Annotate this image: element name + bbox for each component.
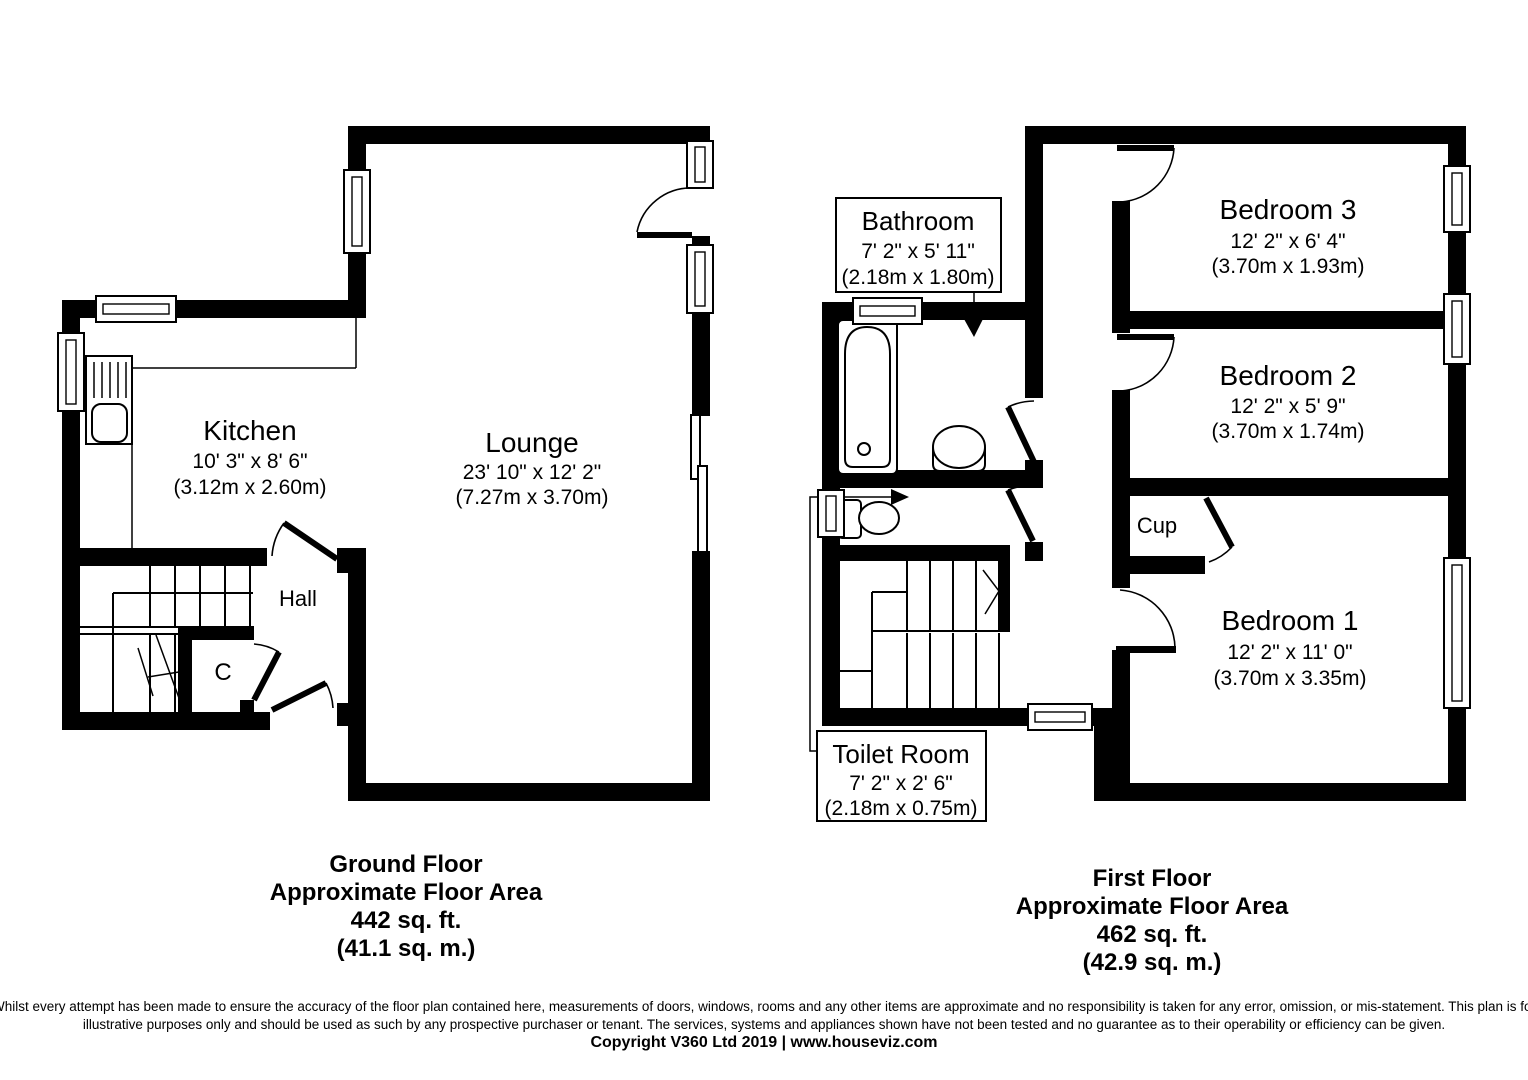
bedroom2-dims-imperial: 12' 2" x 5' 9" [1230,395,1345,418]
first-floor-plan: Bathroom 7' 2" x 5' 11" (2.18m x 1.80m) … [810,126,1470,976]
door-swing [1117,334,1174,391]
toilet-room-label-box: Toilet Room 7' 2" x 2' 6" (2.18m x 0.75m… [817,731,986,821]
door-swing [1116,590,1176,653]
window [1444,166,1470,232]
window [818,490,844,537]
window [96,296,176,322]
ground-summary-title: Ground Floor [329,851,482,878]
bathroom-dims-metric: (2.18m x 1.80m) [842,266,995,289]
kitchen-sink-icon [86,356,132,444]
door-swing [272,523,337,559]
window [1444,558,1470,708]
bathroom-dims-imperial: 7' 2" x 5' 11" [861,240,975,263]
bedroom2-label: Bedroom 2 [1220,360,1357,391]
sliding-door [691,415,707,552]
bedroom1-label: Bedroom 1 [1222,605,1359,636]
bathroom-label: Bathroom [862,206,975,236]
door-swing [1117,145,1174,202]
lounge-dims-metric: (7.27m x 3.70m) [456,486,609,509]
bathtub-icon [838,320,897,474]
ground-floor-plan: Kitchen 10' 3" x 8' 6" (3.12m x 2.60m) L… [58,126,713,962]
ground-summary-area-m: (41.1 sq. m.) [337,935,476,962]
door-swing [1008,486,1034,541]
window [1028,704,1092,730]
bedroom3-dims-metric: (3.70m x 1.93m) [1212,255,1365,278]
first-cupboard-label: Cup [1137,513,1177,538]
window [687,245,713,313]
kitchen-dims-imperial: 10' 3" x 8' 6" [192,450,307,473]
toilet-room-dims-imperial: 7' 2" x 2' 6" [849,772,952,795]
hall-label: Hall [279,586,317,611]
door-swing [637,188,692,238]
kitchen-dims-metric: (3.12m x 2.60m) [174,476,327,499]
door-swing [254,644,279,700]
disclaimer-line-2: illustrative purposes only and should be… [83,1017,1445,1032]
ground-summary-line2: Approximate Floor Area [270,879,543,906]
ground-cupboard-label: C [214,659,231,686]
bedroom1-dims-imperial: 12' 2" x 11' 0" [1227,641,1352,664]
floor-plan-page: Kitchen 10' 3" x 8' 6" (3.12m x 2.60m) L… [0,0,1528,1080]
door-swing [272,683,333,710]
window [344,170,370,253]
bedroom2-dims-metric: (3.70m x 1.74m) [1212,420,1365,443]
toilet-room-dims-metric: (2.18m x 0.75m) [825,797,978,820]
ground-walls [62,126,710,801]
footer-disclaimer: Whilst every attempt has been made to en… [0,999,1528,1051]
first-summary-title: First Floor [1093,865,1212,892]
lounge-dims-imperial: 23' 10" x 12' 2" [463,461,602,484]
door-swing [1206,498,1232,562]
bathroom-sink-icon [933,426,985,471]
toilet-room-label: Toilet Room [832,739,969,769]
ground-floor-summary: Ground Floor Approximate Floor Area 442 … [270,851,543,962]
window [687,141,713,188]
window [1444,294,1470,364]
first-summary-area-ft: 462 sq. ft. [1097,921,1208,948]
bedroom3-label: Bedroom 3 [1220,194,1357,225]
ground-doors [254,188,692,710]
first-summary-area-m: (42.9 sq. m.) [1083,949,1222,976]
ground-summary-area-ft: 442 sq. ft. [351,907,462,934]
floor-plan-drawing: Kitchen 10' 3" x 8' 6" (3.12m x 2.60m) L… [0,0,1528,1080]
ground-windows [58,141,713,552]
disclaimer-line-1: Whilst every attempt has been made to en… [0,999,1528,1014]
door-swing [1008,401,1034,462]
first-floor-summary: First Floor Approximate Floor Area 462 s… [1016,865,1289,976]
first-summary-line2: Approximate Floor Area [1016,893,1289,920]
toilet-icon [838,500,899,538]
kitchen-label: Kitchen [203,415,296,446]
bedroom3-dims-imperial: 12' 2" x 6' 4" [1230,230,1345,253]
lounge-label: Lounge [485,427,578,458]
bedroom1-dims-metric: (3.70m x 3.35m) [1214,667,1367,690]
window [853,298,922,324]
first-stairs [840,561,1010,708]
window [58,333,84,411]
copyright-line: Copyright V360 Ltd 2019 | www.houseviz.c… [590,1034,937,1051]
